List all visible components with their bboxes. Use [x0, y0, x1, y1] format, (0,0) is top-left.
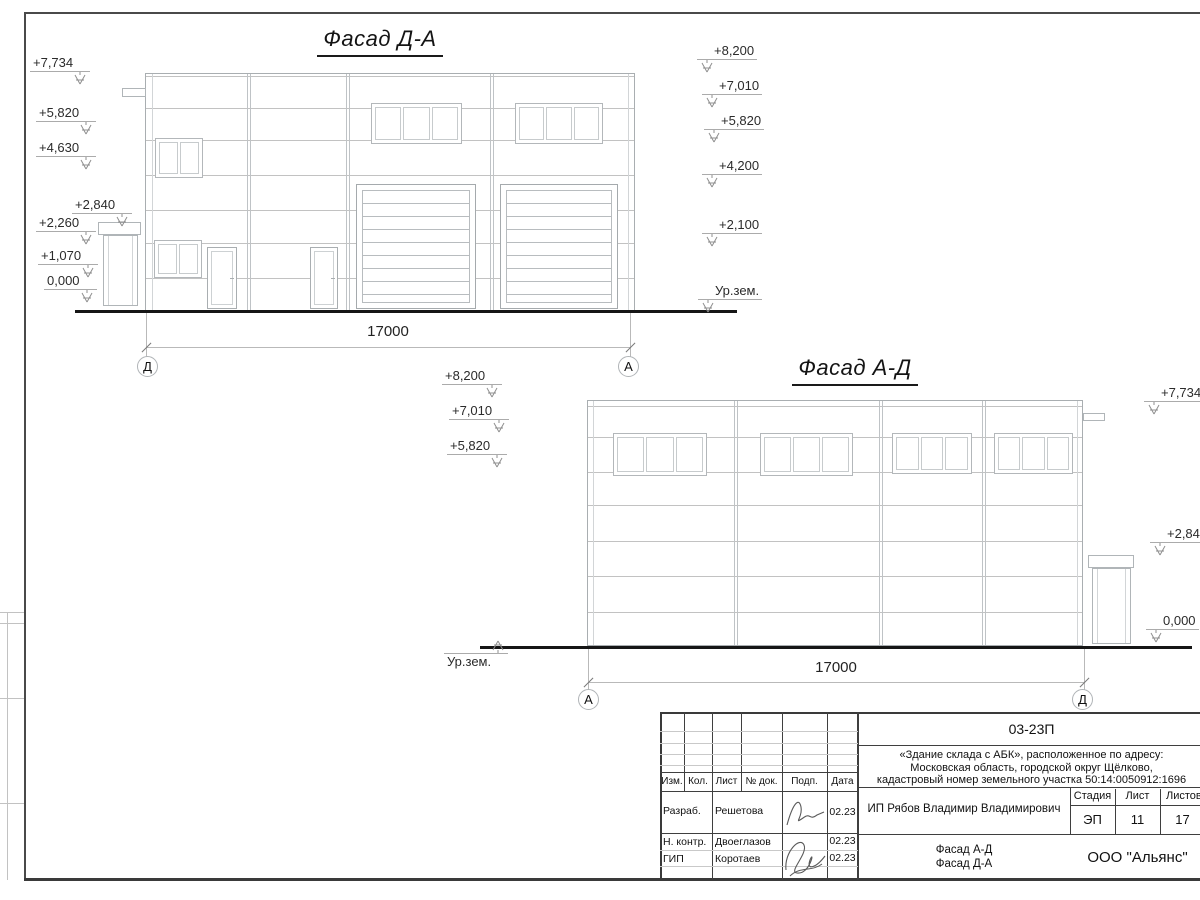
- ground-level-mark: Ур.зем.: [444, 653, 508, 669]
- stage-value: ЭП: [1070, 812, 1115, 827]
- titleblock-line: [712, 712, 713, 880]
- col-header-ndok: № док.: [741, 776, 782, 787]
- organization-name: ООО "Альянс": [1070, 849, 1200, 866]
- dimension-label: 17000: [146, 323, 630, 340]
- margin-stamp-line: [7, 612, 8, 880]
- annex-canopy: [1088, 555, 1134, 568]
- signature: [782, 832, 828, 878]
- axis-marker-a: А: [578, 689, 599, 710]
- annex-line: [132, 236, 133, 305]
- entry-door: [310, 247, 338, 309]
- col-header-data: Дата: [827, 776, 858, 787]
- titleblock-line: [858, 745, 1200, 746]
- elevation-mark: +5,820: [36, 106, 96, 122]
- sheet-content-title: Фасад А-Д Фасад Д-А: [858, 843, 1070, 871]
- elevation-mark: 0,000: [1146, 614, 1199, 630]
- panel-joint: [982, 401, 986, 645]
- sheets-total-header: Листов: [1166, 790, 1200, 802]
- facade-da-title: Фасад Д-А: [290, 26, 470, 57]
- titleblock-line: [660, 772, 858, 773]
- high-window: [892, 433, 972, 474]
- margin-stamp-line: [0, 803, 24, 804]
- dimension-line: [146, 347, 630, 348]
- panel-joint: [247, 74, 251, 310]
- date-value: 02.23: [828, 835, 857, 847]
- parapet-line: [146, 76, 634, 77]
- high-window: [515, 103, 603, 144]
- elevation-mark: +2,840: [1150, 527, 1200, 543]
- sectional-gate: [500, 184, 618, 309]
- high-window: [994, 433, 1073, 474]
- elevation-mark: +8,200: [697, 44, 757, 60]
- elevation-mark: +7,734: [1144, 386, 1200, 402]
- project-title: «Здание склада с АБК», расположенное по …: [860, 749, 1200, 787]
- drawing-sheet: Фасад Д-А 17000 Д А +7,734 +5,820 +4,630…: [0, 0, 1200, 900]
- elevation-mark: +4,200: [702, 159, 762, 175]
- wall-joint-line: [588, 576, 1082, 577]
- pilaster-line: [152, 74, 153, 310]
- col-header-podp: Подп.: [782, 776, 827, 787]
- elevation-mark: 0,000: [44, 274, 97, 290]
- ground-level-mark: Ур.зем.: [698, 284, 762, 300]
- ground-line: [480, 646, 1192, 649]
- sheet-header: Лист: [1115, 790, 1160, 802]
- titleblock-line: [660, 850, 858, 851]
- extension-line: [1084, 649, 1085, 691]
- elevation-mark: +2,100: [702, 218, 762, 234]
- annex-line: [1097, 569, 1098, 643]
- pilaster-line: [1077, 401, 1078, 645]
- panel-joint: [879, 401, 883, 645]
- roof-pipe: [1083, 413, 1105, 421]
- elevation-mark: +5,820: [447, 439, 507, 455]
- wall-joint-line: [588, 612, 1082, 613]
- annex-line: [108, 236, 109, 305]
- elevation-mark: +2,260: [36, 216, 96, 232]
- signature: [784, 795, 826, 831]
- axis-marker-d: Д: [137, 356, 158, 377]
- titleblock-line: [660, 833, 858, 834]
- elevation-mark: +7,734: [30, 56, 90, 72]
- margin-stamp-line: [0, 623, 24, 624]
- high-window: [760, 433, 853, 476]
- small-window: [154, 240, 202, 278]
- role-label: Н. контр.: [663, 836, 706, 848]
- entry-door: [207, 247, 237, 309]
- date-value: 02.23: [828, 806, 857, 818]
- wall-joint-line: [588, 505, 1082, 506]
- col-header-list: Лист: [712, 776, 741, 787]
- ground-line: [75, 310, 737, 313]
- small-window: [155, 138, 203, 178]
- pilaster-line: [593, 401, 594, 645]
- high-window: [371, 103, 462, 144]
- dimension-line: [588, 682, 1084, 683]
- titleblock-line: [660, 765, 858, 766]
- col-header-kol: Кол.: [684, 776, 712, 787]
- stage-header: Стадия: [1070, 790, 1115, 802]
- person-name: Решетова: [715, 805, 763, 817]
- elevation-mark: +7,010: [702, 79, 762, 95]
- axis-marker-a: А: [618, 356, 639, 377]
- client-name: ИП Рябов Владимир Владимирович: [858, 803, 1070, 815]
- sectional-gate: [356, 184, 476, 309]
- elevation-mark: +2,840: [72, 198, 132, 214]
- titleblock-line: [858, 834, 1200, 835]
- panel-joint: [490, 74, 494, 310]
- dimension-label: 17000: [588, 659, 1084, 676]
- parapet-line: [588, 406, 1082, 407]
- elevation-mark: +1,070: [38, 249, 98, 265]
- facade-ad-title: Фасад А-Д: [765, 355, 945, 386]
- axis-marker-d: Д: [1072, 689, 1093, 710]
- margin-stamp-line: [0, 698, 24, 699]
- sheet-frame-left: [24, 12, 26, 880]
- titleblock-line: [660, 754, 858, 755]
- role-label: Разраб.: [663, 805, 701, 817]
- titleblock-line: [660, 731, 858, 732]
- elevation-mark: +5,820: [704, 114, 764, 130]
- role-label: ГИП: [663, 853, 684, 865]
- col-header-izm: Изм.: [660, 776, 684, 787]
- panel-joint: [734, 401, 738, 645]
- elevation-mark: +4,630: [36, 141, 96, 157]
- wall-joint-line: [146, 175, 634, 176]
- elevation-mark: +8,200: [442, 369, 502, 385]
- high-window: [613, 433, 707, 476]
- person-name: Двоеглазов: [715, 836, 771, 848]
- roof-pipe: [122, 88, 146, 97]
- titleblock-line: [660, 791, 858, 792]
- sheets-total: 17: [1160, 812, 1200, 827]
- titleblock-line: [1070, 805, 1200, 806]
- doc-number: 03-23П: [858, 721, 1200, 737]
- sheet-frame-top: [24, 12, 1200, 14]
- sheet-number: 11: [1115, 812, 1160, 827]
- pilaster-line: [628, 74, 629, 310]
- margin-stamp-line: [0, 612, 24, 613]
- titleblock-line: [660, 743, 858, 744]
- wall-joint-line: [588, 541, 1082, 542]
- elevation-mark: +7,010: [449, 404, 509, 420]
- panel-joint: [346, 74, 350, 310]
- titleblock-line: [858, 787, 1200, 788]
- annex-line: [1125, 569, 1126, 643]
- extension-line: [630, 313, 631, 358]
- person-name: Коротаев: [715, 853, 760, 865]
- date-value: 02.23: [828, 852, 857, 864]
- titleblock-line: [660, 866, 858, 867]
